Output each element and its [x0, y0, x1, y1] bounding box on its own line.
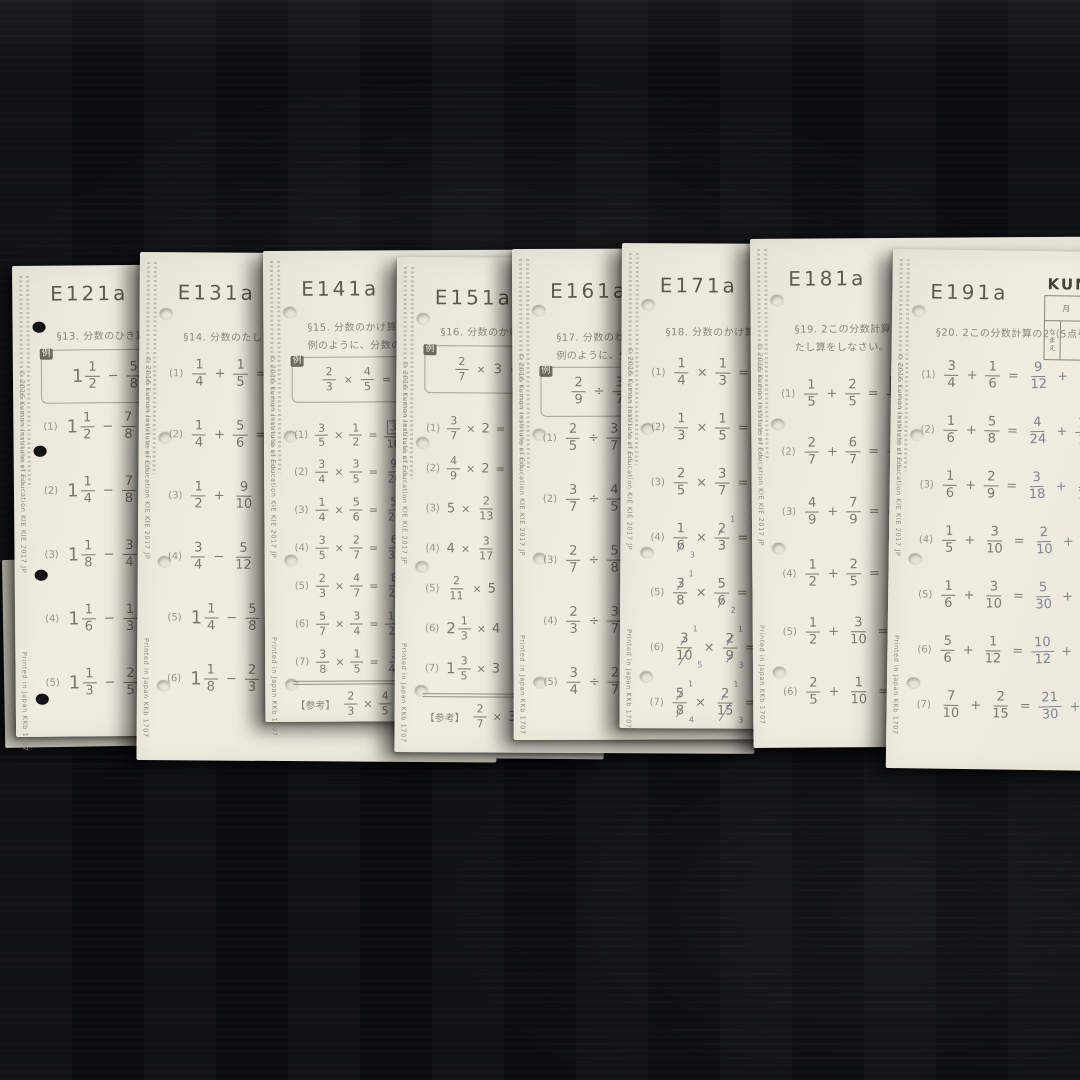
- operator: +: [963, 643, 974, 658]
- fraction: 16: [941, 580, 956, 611]
- fraction: 13: [716, 357, 730, 388]
- integer: 3: [494, 362, 502, 377]
- operator: =: [370, 655, 379, 668]
- punch-hole: [640, 671, 653, 682]
- fraction: 58: [985, 415, 1000, 446]
- problem-number: (2): [426, 463, 440, 474]
- punch-hole: [160, 308, 173, 319]
- problem-row: (7)5184×21153=: [650, 687, 757, 719]
- operator: +: [214, 428, 225, 443]
- fraction: 23: [566, 606, 580, 637]
- copyright-vertical-text: © 2016 Kumon Institute of Education KIE …: [517, 353, 526, 556]
- fraction: 34: [191, 541, 205, 572]
- problem-number: (2): [543, 494, 557, 505]
- operator: ×: [477, 662, 486, 675]
- operator: +: [1062, 589, 1073, 604]
- problem-row: (1)35×12=310: [294, 420, 404, 450]
- mixed-number: 118: [190, 663, 218, 694]
- fraction: 25: [674, 467, 688, 498]
- problem-row: (3)5×213: [426, 495, 497, 522]
- fraction: 23: [316, 573, 329, 600]
- problem-number: (7): [295, 657, 309, 668]
- operator: =: [369, 465, 378, 478]
- problem-number: (5): [543, 677, 557, 688]
- fraction: 310: [982, 580, 1005, 611]
- fraction: 13: [123, 603, 138, 634]
- fraction: 15: [233, 359, 247, 390]
- problem-number: (4): [782, 568, 796, 579]
- operator: ×: [461, 542, 470, 555]
- problem-number: (4): [168, 551, 182, 562]
- problem-number: (4): [295, 543, 309, 554]
- printed-in-japan-text: Printed in Japan KKb 1707: [20, 652, 29, 752]
- fraction: 12: [191, 480, 205, 511]
- fraction: 310: [847, 616, 870, 647]
- fraction: 16: [943, 470, 958, 501]
- operator: +: [970, 698, 981, 713]
- sheet-code: E141a: [301, 276, 379, 300]
- problem-number: (7): [425, 663, 439, 674]
- punch-hole: [283, 307, 296, 318]
- edge-instructions-microtext: [904, 259, 910, 471]
- operator: ×: [335, 541, 344, 554]
- operator: =: [369, 617, 378, 630]
- fraction: 14: [674, 357, 688, 388]
- problem-number: (5): [425, 583, 439, 594]
- mixed-number: 112: [66, 411, 94, 442]
- mixed-number: 116: [68, 603, 96, 634]
- printed-in-japan-text: Printed in Japan KKb 1707: [891, 635, 900, 735]
- punch-hole: [771, 419, 784, 430]
- section-heading: §20. 2この分数計算の2（5点引）: [936, 324, 1080, 341]
- fraction: 67: [846, 436, 860, 467]
- operator: +: [827, 504, 838, 519]
- operator: −: [104, 611, 115, 626]
- sheet-code: E151a: [435, 285, 513, 309]
- fraction: 215: [989, 690, 1012, 721]
- problem-number: (5): [46, 678, 60, 689]
- reference-label: 【参考】: [425, 709, 465, 724]
- mixed-number: 135: [446, 655, 471, 682]
- problem-number: (5): [918, 589, 932, 600]
- problem-number: (6): [167, 673, 181, 684]
- fraction: 35: [316, 535, 329, 562]
- problem-number: (3): [782, 507, 796, 518]
- problem-row: (3)14×56=524: [294, 496, 404, 523]
- problem-number: (1): [781, 388, 795, 399]
- fraction: 14: [192, 419, 206, 450]
- problem-row: (5)114−58=: [167, 602, 279, 634]
- operator: ÷: [589, 675, 600, 690]
- problem-number: (6): [783, 687, 797, 698]
- operator: =: [869, 566, 880, 581]
- operator: −: [102, 419, 113, 434]
- fraction: 25: [123, 667, 138, 698]
- fraction: 34: [315, 459, 328, 486]
- operator: ÷: [588, 431, 599, 446]
- fraction: 29: [571, 376, 585, 407]
- fraction: 710: [940, 690, 963, 721]
- sheet-code: E161a: [550, 279, 628, 303]
- edge-instructions-microtext: [526, 259, 530, 471]
- sheet-code: E191a: [930, 280, 1008, 305]
- problem-row: (6)31105×2193=: [650, 632, 757, 664]
- punch-hole: [415, 561, 428, 572]
- operator: =: [868, 386, 879, 401]
- cancellation-mark: 3: [739, 662, 744, 671]
- sheet-code: E131a: [178, 280, 256, 305]
- fraction: 27: [474, 703, 487, 730]
- fraction: 27: [455, 356, 468, 383]
- section-heading-line2: たし算をしなさい。: [795, 338, 890, 354]
- problem-number: (4): [650, 532, 664, 543]
- problem-row: (5)211×5: [425, 575, 496, 602]
- fraction: 13: [82, 667, 97, 698]
- problem-number: (2): [44, 486, 58, 497]
- operator: −: [226, 611, 237, 626]
- operator: ÷: [589, 614, 600, 629]
- copyright-vertical-text: © 2016 Kumon Institute of Education KIE …: [269, 355, 278, 558]
- fraction: 27: [350, 534, 363, 561]
- fraction: 16: [985, 360, 1000, 391]
- operator: −: [104, 675, 115, 690]
- fraction: 21153: [714, 687, 737, 718]
- fraction: 317: [476, 535, 496, 562]
- operator: +: [828, 624, 839, 639]
- operator: ×: [466, 462, 475, 475]
- operator: −: [103, 547, 114, 562]
- date-row: 月: [1045, 296, 1080, 324]
- fraction: 2193: [722, 633, 736, 664]
- edge-instructions-microtext: [635, 253, 639, 465]
- operator: +: [964, 533, 975, 548]
- copyright-vertical-text: © 2016 Kumon Institute of Education KIE …: [400, 361, 409, 564]
- problem-number: (5): [650, 587, 664, 598]
- fraction: 530: [1032, 581, 1055, 613]
- operator: +: [1069, 699, 1080, 714]
- operator: =: [1006, 479, 1017, 494]
- integer: 4: [492, 621, 500, 636]
- cancellation-mark: 1: [738, 626, 743, 635]
- cancellation-mark: 1: [733, 681, 738, 690]
- operator: +: [828, 566, 839, 581]
- fraction: 13: [674, 412, 688, 443]
- fraction: 29: [984, 470, 999, 501]
- fraction: 35: [457, 655, 470, 682]
- integer: 4: [447, 541, 455, 556]
- fraction: 212: [1076, 361, 1080, 393]
- problem-row: (2)49×2=: [426, 455, 506, 482]
- fraction: 45: [361, 366, 374, 393]
- mixed-number: 113: [69, 667, 97, 698]
- operator: +: [967, 368, 978, 383]
- fraction: 12: [349, 422, 362, 449]
- fraction: 56: [350, 496, 363, 523]
- punch-hole: [417, 313, 430, 324]
- cancellation-mark: 1: [688, 680, 693, 689]
- fraction: 2130: [1038, 691, 1061, 723]
- punch-hole: [32, 322, 45, 333]
- operator: −: [108, 369, 119, 384]
- problem-row: (3)12+910=: [168, 480, 275, 512]
- operator: ×: [696, 420, 707, 435]
- operator: ×: [472, 582, 481, 595]
- mixed-number: 112: [72, 361, 100, 392]
- problem-number: (5): [295, 581, 309, 592]
- problem-row: (4)34−512=: [168, 541, 275, 573]
- problem-number: (1): [294, 430, 308, 441]
- printed-in-japan-text: Printed in Japan KKb 1707: [518, 635, 526, 735]
- operator: −: [103, 483, 114, 498]
- operator: ×: [334, 465, 343, 478]
- problem-number: (3): [294, 505, 308, 516]
- fraction: 34: [567, 667, 581, 698]
- fraction: 12: [85, 361, 100, 392]
- operator: =: [369, 541, 378, 554]
- fraction: 49: [805, 497, 819, 528]
- problem-row: (5)318×562=: [650, 577, 749, 609]
- example-label: 例: [40, 349, 53, 360]
- fraction: 56: [233, 420, 247, 451]
- example-expression: 27×3=: [455, 356, 520, 383]
- worksheet-E191a: © 2016 Kumon Institute of Education KIE …: [886, 249, 1080, 773]
- cancellation-mark: 1: [689, 570, 694, 579]
- operator: ×: [363, 697, 372, 710]
- printed-in-japan-text: Printed in Japan KKb 1707: [142, 638, 151, 738]
- fraction: 112: [982, 635, 1005, 666]
- fraction: 318: [673, 577, 687, 608]
- problem-row: (4)15+310=210+310=510: [919, 524, 1080, 558]
- operator: +: [1063, 534, 1074, 549]
- problem-number: (1): [921, 369, 935, 380]
- fraction: 14: [192, 358, 206, 389]
- punch-hole: [772, 543, 785, 554]
- problem-row: (4)4×317: [425, 535, 496, 562]
- operator: =: [738, 421, 749, 436]
- punch-hole: [532, 305, 545, 316]
- problem-number: (1): [651, 367, 665, 378]
- operator: +: [215, 367, 226, 382]
- fraction: 424: [1026, 416, 1049, 448]
- fraction: 213: [715, 522, 729, 553]
- fraction: 58: [245, 603, 259, 634]
- problem-number: (1): [43, 422, 57, 433]
- problem-number: (3): [426, 503, 440, 514]
- operator: ×: [697, 365, 708, 380]
- printed-in-japan-text: Printed in Japan KKb 1707: [270, 637, 279, 737]
- problem-row: (1)15+25=75: [781, 376, 907, 411]
- problem-number: (5): [783, 627, 797, 638]
- problem-row: (2)27+67=87: [781, 436, 901, 468]
- operator: =: [496, 422, 505, 435]
- operator: ×: [466, 422, 475, 435]
- fraction: 912: [1026, 361, 1049, 393]
- fraction: 1012: [1031, 636, 1054, 668]
- fraction: 31105: [673, 632, 696, 663]
- problem-number: (1): [426, 423, 440, 434]
- problem-number: (4): [919, 534, 933, 545]
- copyright-vertical-text: © 2016 Kumon Institute of Education KIE …: [894, 353, 905, 556]
- operator: ×: [493, 710, 502, 723]
- integer: 3: [492, 661, 500, 676]
- operator: +: [829, 684, 840, 699]
- operator: +: [965, 478, 976, 493]
- problem-number: (3): [920, 479, 934, 490]
- problem-row: (1)34+16=912+212=1112: [921, 359, 1080, 393]
- operator: +: [1057, 369, 1068, 384]
- problem-row: (6)213×4: [425, 615, 500, 642]
- fraction: 23: [344, 691, 357, 718]
- problem-number: (7): [650, 697, 664, 708]
- operator: ÷: [588, 492, 599, 507]
- fraction: 27: [805, 437, 819, 468]
- fraction: 16: [82, 603, 97, 634]
- operator: +: [826, 386, 837, 401]
- edge-instructions-microtext: [410, 267, 414, 479]
- fraction: 12: [806, 617, 820, 648]
- operator: =: [738, 366, 749, 381]
- problem-number: (4): [45, 614, 59, 625]
- operator: =: [737, 586, 748, 601]
- fraction: 79: [846, 496, 860, 527]
- fraction: 25: [845, 378, 859, 409]
- punch-hole: [770, 295, 783, 306]
- problem-row: (2)14+56=: [169, 419, 268, 451]
- fraction: 318: [1025, 471, 1048, 503]
- edge-instructions-microtext: [277, 261, 281, 473]
- problem-number: (5): [167, 612, 181, 623]
- operator: ÷: [594, 384, 605, 399]
- fraction: 34: [350, 610, 363, 637]
- problem-row: (7)38×15=340: [295, 648, 405, 675]
- operator: =: [1008, 369, 1019, 384]
- fraction: 12: [80, 411, 95, 442]
- operator: =: [737, 476, 748, 491]
- fraction: 12: [805, 558, 819, 589]
- edge-instructions-microtext: [26, 276, 31, 488]
- cancellation-mark: 3: [690, 552, 695, 561]
- problem-number: (2): [169, 429, 183, 440]
- fraction: 14: [80, 475, 95, 506]
- operator: ×: [344, 373, 353, 386]
- fraction: 18: [204, 663, 218, 694]
- problem-row: (1)37×2=: [426, 415, 506, 442]
- problem-number: (7): [917, 699, 931, 710]
- fraction: 210: [1032, 526, 1055, 558]
- cancellation-mark: 2: [731, 607, 736, 616]
- fraction: 37: [607, 423, 621, 454]
- punch-hole: [35, 570, 48, 581]
- copyright-vertical-text: © 2016 Kumon Institute of Education KIE …: [625, 347, 634, 550]
- problem-number: (1): [169, 368, 183, 379]
- fraction: 37: [715, 467, 729, 498]
- fraction: 213: [476, 495, 496, 522]
- printed-in-japan-text: Printed in Japan KKb 1707: [758, 625, 767, 725]
- fraction: 78: [121, 411, 136, 442]
- fraction: 37: [447, 415, 460, 442]
- problem-number: (2): [651, 422, 665, 433]
- operator: ×: [476, 363, 485, 376]
- operator: ×: [335, 579, 344, 592]
- fraction: 45: [607, 484, 621, 515]
- fraction: 47: [350, 572, 363, 599]
- operator: −: [213, 550, 224, 565]
- punch-hole: [912, 305, 925, 316]
- problem-number: (3): [44, 550, 58, 561]
- operator: =: [369, 503, 378, 516]
- integer: 2: [481, 421, 489, 436]
- punch-hole: [907, 677, 920, 688]
- mixed-number: 114: [191, 602, 219, 633]
- fraction: 418: [1074, 471, 1080, 503]
- example-label: 例: [423, 344, 436, 355]
- operator: =: [1012, 644, 1023, 659]
- fraction: 25: [847, 558, 861, 589]
- problem-number: (6): [295, 619, 309, 630]
- operator: ×: [696, 530, 707, 545]
- edge-instructions-microtext: [764, 249, 768, 461]
- fraction: 34: [122, 539, 137, 570]
- cancellation-mark: 5: [697, 662, 702, 671]
- problem-row: (6)56+112=1012+112=1112: [917, 634, 1080, 668]
- operator: =: [1013, 589, 1024, 604]
- fraction: 56: [940, 635, 955, 666]
- printed-in-japan-text: Printed in Japan KKb 1707: [624, 629, 633, 729]
- fraction: 14: [204, 602, 218, 633]
- operator: +: [1062, 644, 1073, 659]
- operator: ×: [335, 617, 344, 630]
- problem-row: (5)16+310=530+930=1430: [918, 579, 1080, 613]
- fraction: 16: [943, 415, 958, 446]
- fraction: 211: [446, 575, 466, 602]
- operator: +: [964, 588, 975, 603]
- copyright-vertical-text: © 2016 Kumon Institute of Education KIE …: [143, 356, 152, 559]
- fraction: 45: [379, 690, 392, 717]
- operator: +: [1056, 424, 1067, 439]
- problem-number: (2): [294, 467, 308, 478]
- problem-number: (4): [543, 616, 557, 627]
- fraction: 25: [566, 423, 580, 454]
- operator: ×: [335, 655, 344, 668]
- operator: ×: [704, 640, 715, 655]
- problem-number: (6): [425, 623, 439, 634]
- fraction: 18: [81, 539, 96, 570]
- cancellation-mark: 1: [730, 516, 735, 525]
- problem-row: (4)35×27=635: [294, 534, 404, 561]
- cancellation-mark: 1: [692, 625, 697, 634]
- reference-label: 【参考】: [295, 697, 335, 712]
- operator: ×: [696, 475, 707, 490]
- operator: −: [226, 672, 237, 687]
- fraction: 34: [944, 360, 959, 391]
- fraction: 15: [350, 648, 363, 675]
- example-label: 例: [539, 366, 552, 377]
- section-heading: §18. 分数のかけ算: [666, 323, 756, 338]
- operator: =: [382, 373, 391, 386]
- problem-number: (1): [543, 433, 557, 444]
- mixed-number: 114: [67, 475, 95, 506]
- operator: =: [1007, 424, 1018, 439]
- operator: =: [368, 429, 377, 442]
- operator: ×: [477, 622, 486, 635]
- fraction: 13: [458, 615, 471, 642]
- sheet-code: E121a: [50, 281, 128, 306]
- operator: ×: [696, 585, 707, 600]
- problem-number: (3): [651, 477, 665, 488]
- problem-row: (6)57×34=1528: [295, 610, 405, 637]
- fraction: 27: [566, 545, 580, 576]
- operator: =: [1014, 534, 1025, 549]
